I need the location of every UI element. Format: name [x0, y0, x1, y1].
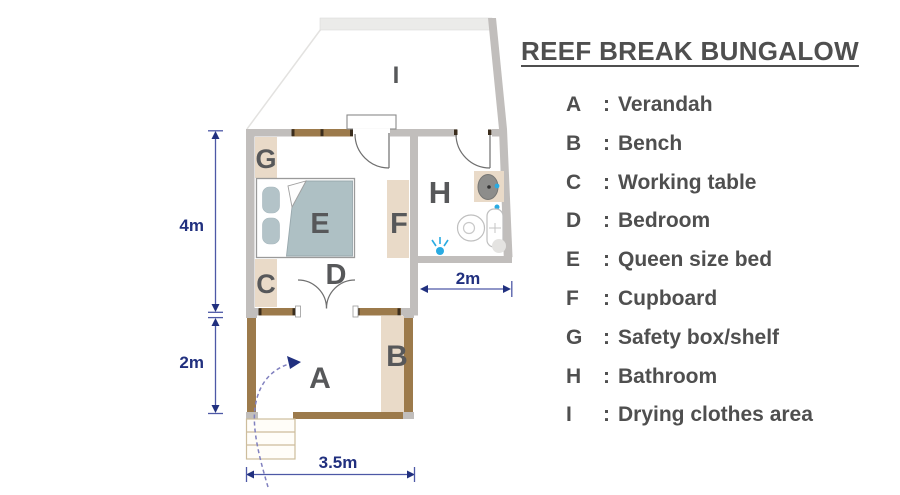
bathroom-door	[454, 129, 492, 169]
bedroom-window	[292, 129, 354, 137]
verandah-bottom-wall	[293, 412, 411, 419]
drying-area: I	[247, 18, 507, 129]
legend-item-safety-box: G : Safety box/shelf	[566, 326, 891, 365]
legend-letter: B	[566, 132, 603, 156]
legend-label: Verandah	[618, 93, 713, 117]
queen-bed	[257, 179, 355, 258]
legend-label: Safety box/shelf	[618, 326, 779, 350]
toilet	[458, 205, 507, 254]
page-title: REEF BREAK BUNGALOW	[521, 36, 891, 67]
pillow	[263, 187, 280, 213]
legend: REEF BREAK BUNGALOW A : Verandah B : Ben…	[521, 36, 891, 442]
safety-box-label: G	[255, 144, 276, 174]
legend-letter: G	[566, 326, 603, 350]
legend-label: Bathroom	[618, 365, 717, 389]
bedroom-label: D	[326, 259, 347, 291]
legend-colon: :	[603, 326, 610, 350]
dimension-2m-bathroom: 2m	[420, 269, 512, 297]
bathroom-label: H	[429, 175, 451, 210]
bedroom-right-wall	[410, 129, 418, 315]
faucet-dot-icon	[495, 184, 500, 189]
verandah-label: A	[309, 362, 331, 395]
legend-item-drying-area: I : Drying clothes area	[566, 403, 891, 442]
legend-letter: I	[566, 403, 603, 427]
dimension-2m-left-label: 2m	[179, 353, 204, 372]
drain-circle	[492, 239, 506, 253]
legend-label: Bedroom	[618, 209, 710, 233]
shower-spray-icon	[432, 237, 448, 255]
bedroom-top-door	[353, 129, 390, 169]
bedroom-left-wall	[246, 129, 255, 315]
legend-item-bathroom: H : Bathroom	[566, 365, 891, 404]
legend-letter: A	[566, 93, 603, 117]
floor-plan: I	[0, 0, 520, 495]
legend-label: Drying clothes area	[618, 403, 813, 427]
legend-colon: :	[603, 365, 610, 389]
page: I	[0, 0, 900, 495]
sink	[474, 171, 504, 202]
legend-label: Queen size bed	[618, 248, 772, 272]
cupboard-label: F	[390, 208, 408, 240]
dimension-3-5m-label: 3.5m	[319, 453, 358, 472]
window-box	[347, 115, 396, 129]
legend-letter: F	[566, 287, 603, 311]
legend-letter: C	[566, 171, 603, 195]
legend-label: Bench	[618, 132, 682, 156]
verandah-left-wall	[247, 317, 256, 412]
dimension-4m: 4m	[179, 131, 223, 312]
legend-label: Working table	[618, 171, 756, 195]
drying-area-label: I	[393, 62, 400, 89]
legend-colon: :	[603, 132, 610, 156]
legend-colon: :	[603, 209, 610, 233]
legend-colon: :	[603, 93, 610, 117]
working-table-label: C	[256, 269, 276, 299]
legend-item-bedroom: D : Bedroom	[566, 209, 891, 248]
legend-colon: :	[603, 403, 610, 427]
legend-item-cupboard: F : Cupboard	[566, 287, 891, 326]
drying-left-edge	[247, 29, 321, 129]
legend-item-bench: B : Bench	[566, 132, 891, 171]
dimension-2m-vertical: 2m	[179, 318, 223, 414]
legend-label: Cupboard	[618, 287, 717, 311]
legend-colon: :	[603, 248, 610, 272]
legend-item-queen-bed: E : Queen size bed	[566, 248, 891, 287]
pillow	[263, 218, 280, 244]
legend-list: A : Verandah B : Bench C : Working table…	[521, 93, 891, 442]
legend-letter: D	[566, 209, 603, 233]
dimension-2m-bathroom-label: 2m	[456, 269, 481, 288]
bathroom-bottom-wall	[410, 256, 512, 263]
legend-item-working-table: C : Working table	[566, 171, 891, 210]
drying-top-wall	[320, 18, 492, 30]
dimension-4m-label: 4m	[179, 216, 204, 235]
bed-label: E	[310, 208, 329, 240]
stairs	[247, 419, 296, 459]
drying-right-wall	[488, 18, 507, 129]
legend-letter: H	[566, 365, 603, 389]
legend-letter: E	[566, 248, 603, 272]
legend-colon: :	[603, 287, 610, 311]
bench-label: B	[386, 340, 408, 373]
legend-item-verandah: A : Verandah	[566, 93, 891, 132]
legend-colon: :	[603, 171, 610, 195]
